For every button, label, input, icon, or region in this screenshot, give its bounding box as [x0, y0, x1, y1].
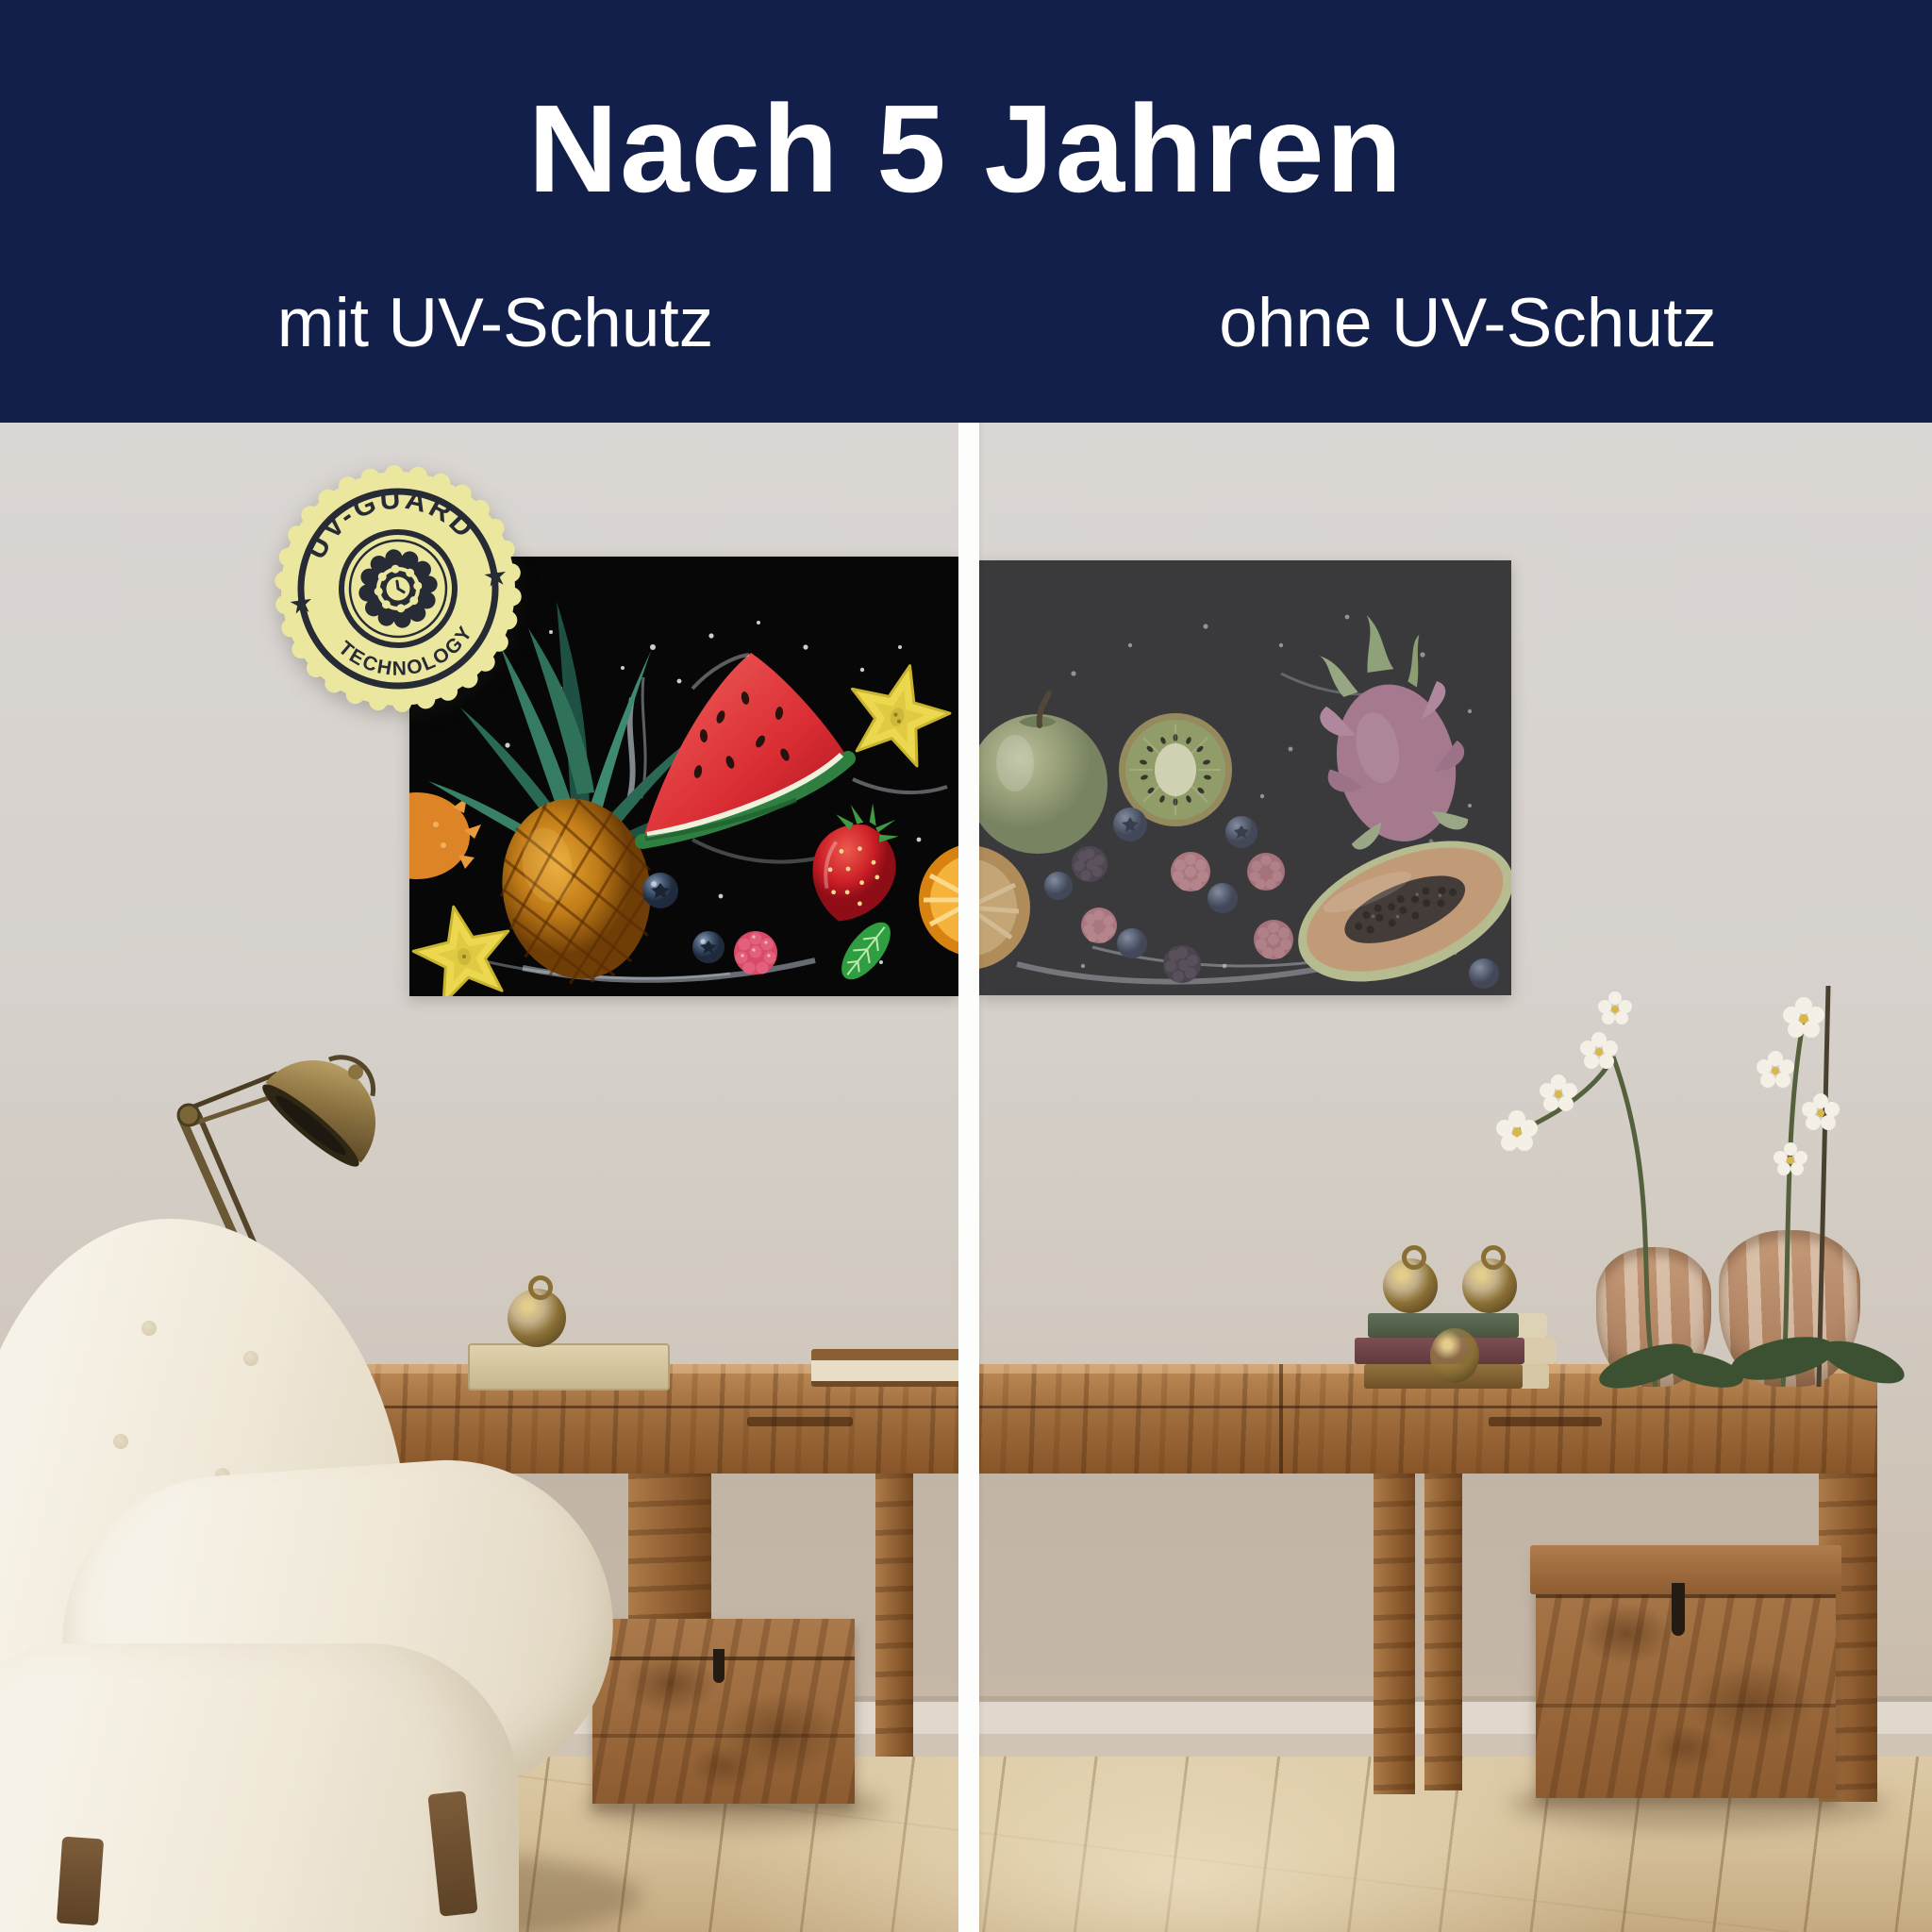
lamp-shade	[256, 1024, 409, 1174]
raspberry	[734, 931, 777, 974]
white-orchids	[1472, 981, 1906, 1396]
book	[811, 1349, 962, 1387]
comparison-divider	[958, 423, 979, 1932]
console-right-leg-a	[1374, 1474, 1415, 1794]
page-title: Nach 5 Jahren	[0, 87, 1932, 211]
orchid-leaves	[1594, 1329, 1906, 1396]
chest-latch	[713, 1649, 724, 1683]
artwork-without-uv-protection	[979, 560, 1511, 995]
uv-fade-veil	[979, 560, 1511, 995]
uv-guard-badge: UV-GUARD TECHNOLOGY ★ ★	[270, 460, 526, 717]
orchid-flowers	[1496, 991, 1840, 1175]
brass-ornament-ring	[1402, 1245, 1426, 1270]
star-icon: ★	[289, 588, 315, 619]
label-without-uv: ohne UV-Schutz	[1219, 289, 1717, 358]
chair-leg	[57, 1837, 104, 1926]
wooden-tray	[468, 1343, 670, 1391]
console-right-leg-b	[1424, 1474, 1462, 1790]
wooden-chest-left	[592, 1619, 855, 1804]
product-comparison-image: UV-GUARD TECHNOLOGY ★ ★	[0, 0, 1932, 1932]
wooden-chest-right	[1536, 1545, 1836, 1798]
brass-ornament-ring	[528, 1275, 553, 1300]
console-left-leg	[875, 1474, 913, 1757]
star-icon: ★	[482, 560, 508, 591]
label-with-uv: mit UV-Schutz	[277, 289, 713, 358]
chest-latch	[1672, 1583, 1685, 1636]
header-banner: Nach 5 Jahren mit UV-Schutz ohne UV-Schu…	[0, 0, 1932, 423]
fruit-print-faded	[979, 560, 1511, 995]
